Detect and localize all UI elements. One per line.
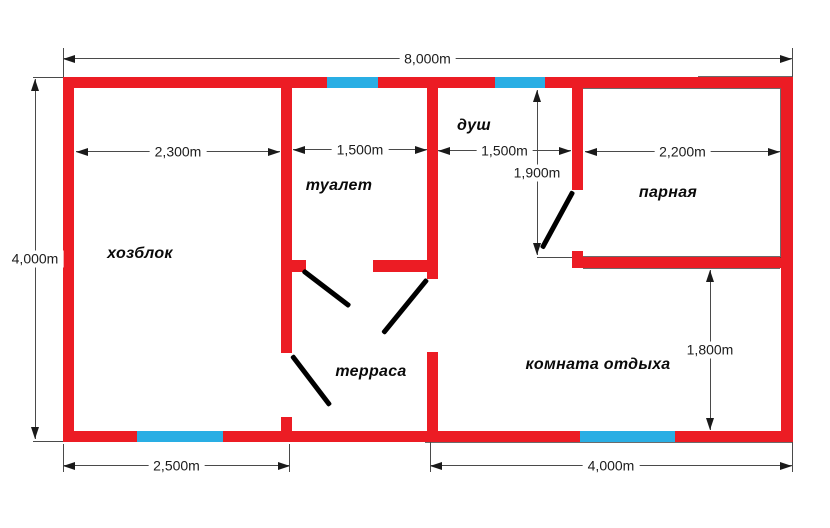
window-bottom-khozblok	[137, 431, 223, 442]
tick-top-right	[792, 48, 793, 77]
arrow-up-icon	[533, 90, 541, 102]
arrow-left-icon	[63, 55, 75, 63]
outline-wall-c-top	[583, 256, 780, 257]
arrow-down-icon	[533, 243, 541, 255]
room-label-parnaya: парная	[639, 184, 697, 202]
wall-khozblok-toilet-lower-stub	[281, 417, 292, 431]
dim-left-section-bottom-label: 2,500m	[148, 458, 205, 475]
arrow-right-icon	[278, 462, 290, 470]
wall-khozblok-toilet-upper	[281, 88, 292, 353]
arrow-down-icon	[706, 418, 714, 430]
arrow-left-icon	[293, 146, 305, 154]
door-swing-toilet	[301, 269, 351, 309]
dim-shower-height-label: 1,900m	[509, 164, 566, 181]
window-bottom-lounge	[580, 431, 675, 442]
wall-terrace-lounge-lower	[427, 352, 438, 431]
outline-parnaya-right-inner	[780, 88, 781, 258]
arrow-left-icon	[585, 148, 597, 156]
outline-parnaya-top-inner	[583, 88, 780, 89]
arrow-left-icon	[76, 148, 88, 156]
dim-right-section-bottom-label: 4,000m	[583, 458, 640, 475]
arrow-right-icon	[780, 55, 792, 63]
tick-bottom-right-2	[792, 442, 793, 472]
arrow-down-icon	[31, 427, 39, 439]
door-swing-terrace-lounge	[381, 278, 429, 335]
dim-lounge-height-label: 1,800m	[682, 342, 739, 359]
dim-total-width-label: 8,000m	[399, 51, 456, 68]
dim-shower-width-label: 1,500m	[476, 143, 533, 160]
tick-left-lower	[33, 441, 63, 442]
arrow-right-icon	[559, 147, 571, 155]
arrow-right-icon	[268, 148, 280, 156]
outline-bottom-wall-outer	[425, 442, 793, 443]
room-label-lounge: комната отдыха	[526, 356, 671, 374]
wall-toilet-shower-upper	[427, 88, 438, 279]
dim-toilet-width-label: 1,500m	[332, 142, 389, 159]
room-label-terrace: терраса	[335, 363, 406, 381]
wall-shower-parnaya-upper	[572, 88, 583, 190]
arrow-right-icon	[780, 462, 792, 470]
room-label-shower: душ	[457, 117, 491, 135]
dim-khozblok-width-label: 2,300m	[150, 144, 207, 161]
room-label-khozblok: хозблок	[107, 245, 173, 263]
dim-parnaya-width-label: 2,200m	[654, 144, 711, 161]
outline-top-wall-outer	[698, 76, 793, 77]
window-top-toilet	[327, 77, 378, 88]
wall-outer-top	[63, 77, 793, 88]
wall-outer-left	[63, 77, 74, 442]
dim-total-height-label: 4,000m	[7, 251, 64, 268]
arrow-left-icon	[438, 147, 450, 155]
window-top-shower	[495, 77, 545, 88]
arrow-up-icon	[706, 270, 714, 282]
wall-toilet-bottom-right	[373, 260, 427, 272]
arrow-right-icon	[415, 146, 427, 154]
arrow-right-icon	[768, 148, 780, 156]
outline-wall-c-bottom	[583, 268, 780, 269]
arrow-left-icon	[63, 462, 75, 470]
arrow-left-icon	[430, 462, 442, 470]
arrow-up-icon	[31, 79, 39, 91]
door-swing-khozblok	[290, 354, 332, 407]
floor-plan: 8,000m 4,000m 2,300m 1,500m 1,500m 2,200…	[0, 0, 830, 528]
tick-shower-height-base	[537, 257, 572, 258]
room-label-toilet: туалет	[306, 177, 373, 195]
tick-left-upper	[33, 77, 63, 78]
wall-parnaya-lounge	[572, 257, 792, 268]
door-swing-parnaya	[540, 190, 575, 250]
